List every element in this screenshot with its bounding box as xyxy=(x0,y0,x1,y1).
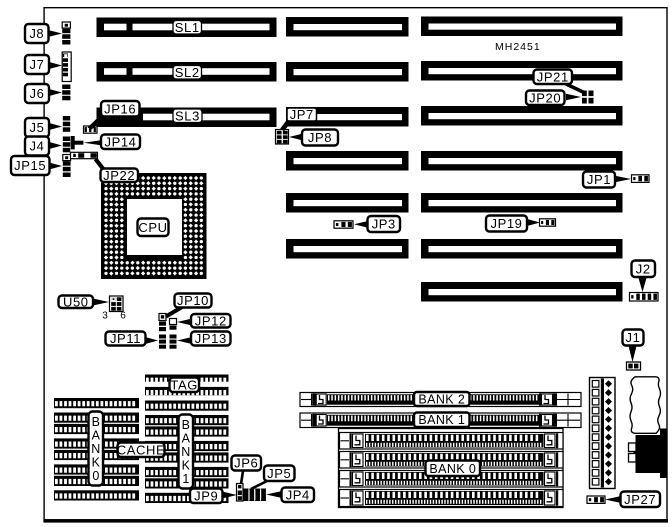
svg-text:JP21: JP21 xyxy=(537,69,569,84)
svg-text:U50: U50 xyxy=(63,294,89,309)
svg-text:TAG: TAG xyxy=(170,377,198,392)
svg-text:0: 0 xyxy=(92,469,99,483)
svg-text:N: N xyxy=(181,445,190,459)
svg-text:MH2451: MH2451 xyxy=(495,41,541,53)
svg-text:B: B xyxy=(182,418,190,432)
svg-text:JP3: JP3 xyxy=(372,217,396,232)
svg-text:JP19: JP19 xyxy=(490,216,522,231)
svg-text:SL2: SL2 xyxy=(175,65,200,80)
svg-text:BANK 2: BANK 2 xyxy=(418,393,465,407)
svg-text:J4: J4 xyxy=(30,139,45,154)
svg-text:BANK 1: BANK 1 xyxy=(418,413,465,427)
svg-text:JP13: JP13 xyxy=(195,331,227,346)
svg-text:JP1: JP1 xyxy=(587,172,611,187)
svg-text:1: 1 xyxy=(182,472,189,486)
svg-text:JP12: JP12 xyxy=(195,313,227,328)
svg-text:CACHE: CACHE xyxy=(117,442,166,457)
svg-text:JP15: JP15 xyxy=(14,158,46,173)
svg-text:6: 6 xyxy=(120,311,126,322)
svg-text:SL3: SL3 xyxy=(175,108,200,123)
svg-text:JP4: JP4 xyxy=(286,487,310,502)
svg-text:SL1: SL1 xyxy=(175,20,200,35)
svg-text:JP8: JP8 xyxy=(308,130,332,145)
svg-text:N: N xyxy=(91,442,100,456)
svg-text:J7: J7 xyxy=(30,57,45,72)
svg-text:B: B xyxy=(92,415,100,429)
svg-text:JP14: JP14 xyxy=(104,134,136,149)
svg-text:JP5: JP5 xyxy=(267,466,291,481)
svg-text:JP6: JP6 xyxy=(234,456,258,471)
svg-text:J1: J1 xyxy=(626,330,641,345)
svg-text:J6: J6 xyxy=(30,86,45,101)
svg-text:JP10: JP10 xyxy=(177,293,209,308)
svg-text:JP22: JP22 xyxy=(103,168,135,183)
svg-text:K: K xyxy=(92,456,101,470)
svg-text:JP20: JP20 xyxy=(529,90,561,105)
svg-text:3: 3 xyxy=(102,311,108,322)
svg-text:K: K xyxy=(182,459,191,473)
svg-text:JP11: JP11 xyxy=(110,331,141,346)
svg-text:JP27: JP27 xyxy=(624,492,656,507)
svg-text:J2: J2 xyxy=(636,261,651,276)
svg-text:J5: J5 xyxy=(30,120,45,135)
svg-text:JP7: JP7 xyxy=(290,107,314,122)
svg-text:A: A xyxy=(182,431,191,445)
svg-text:CPU: CPU xyxy=(138,220,167,235)
svg-text:JP9: JP9 xyxy=(194,488,218,503)
svg-text:JP16: JP16 xyxy=(104,101,136,116)
svg-text:A: A xyxy=(92,428,101,442)
svg-text:BANK 0: BANK 0 xyxy=(429,462,476,476)
svg-text:J8: J8 xyxy=(29,26,44,41)
